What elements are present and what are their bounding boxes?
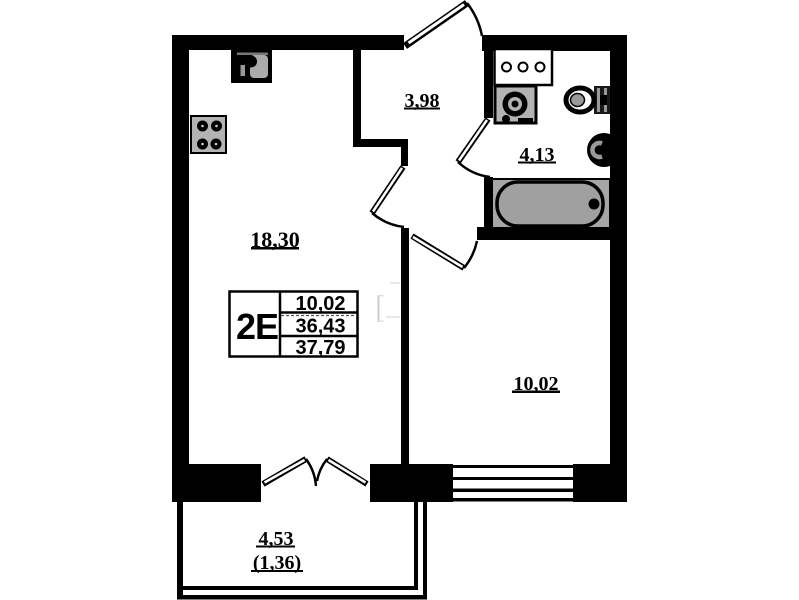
svg-text:37,79: 37,79 (295, 337, 345, 359)
svg-text:36,43: 36,43 (295, 316, 345, 338)
svg-text:10,02: 10,02 (295, 293, 345, 315)
svg-text:2E: 2E (236, 306, 278, 347)
